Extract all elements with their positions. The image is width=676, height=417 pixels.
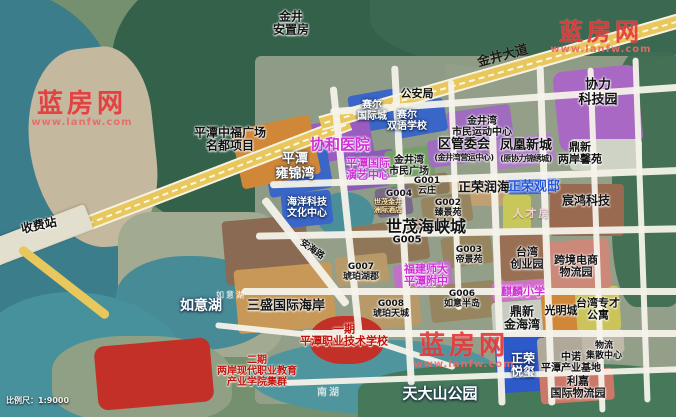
watermarks-layer: 蓝房网www.lanfw.com蓝房网www.lanfw.com蓝房网www.l… xyxy=(0,0,676,417)
satellite-planning-map: 金井安置房金井大道公安局赛尔国际城赛尔双语学校平潭中福广场名都项目协和医院金井湾… xyxy=(0,0,676,417)
scale-label: 比例尺：1:9000 xyxy=(6,395,69,406)
watermark-logo-text: 蓝房网 xyxy=(31,91,132,118)
wm-topright: 蓝房网www.lanfw.com xyxy=(550,20,651,56)
watermark-logo-text: 蓝房网 xyxy=(413,333,514,360)
watermark-url-text: www.lanfw.com xyxy=(550,45,651,56)
wm-south: 蓝房网www.lanfw.com xyxy=(413,333,514,371)
watermark-url-text: www.lanfw.com xyxy=(413,360,514,371)
watermark-logo-text: 蓝房网 xyxy=(550,20,651,45)
watermark-url-text: www.lanfw.com xyxy=(31,118,132,129)
wm-west: 蓝房网www.lanfw.com xyxy=(31,91,132,129)
